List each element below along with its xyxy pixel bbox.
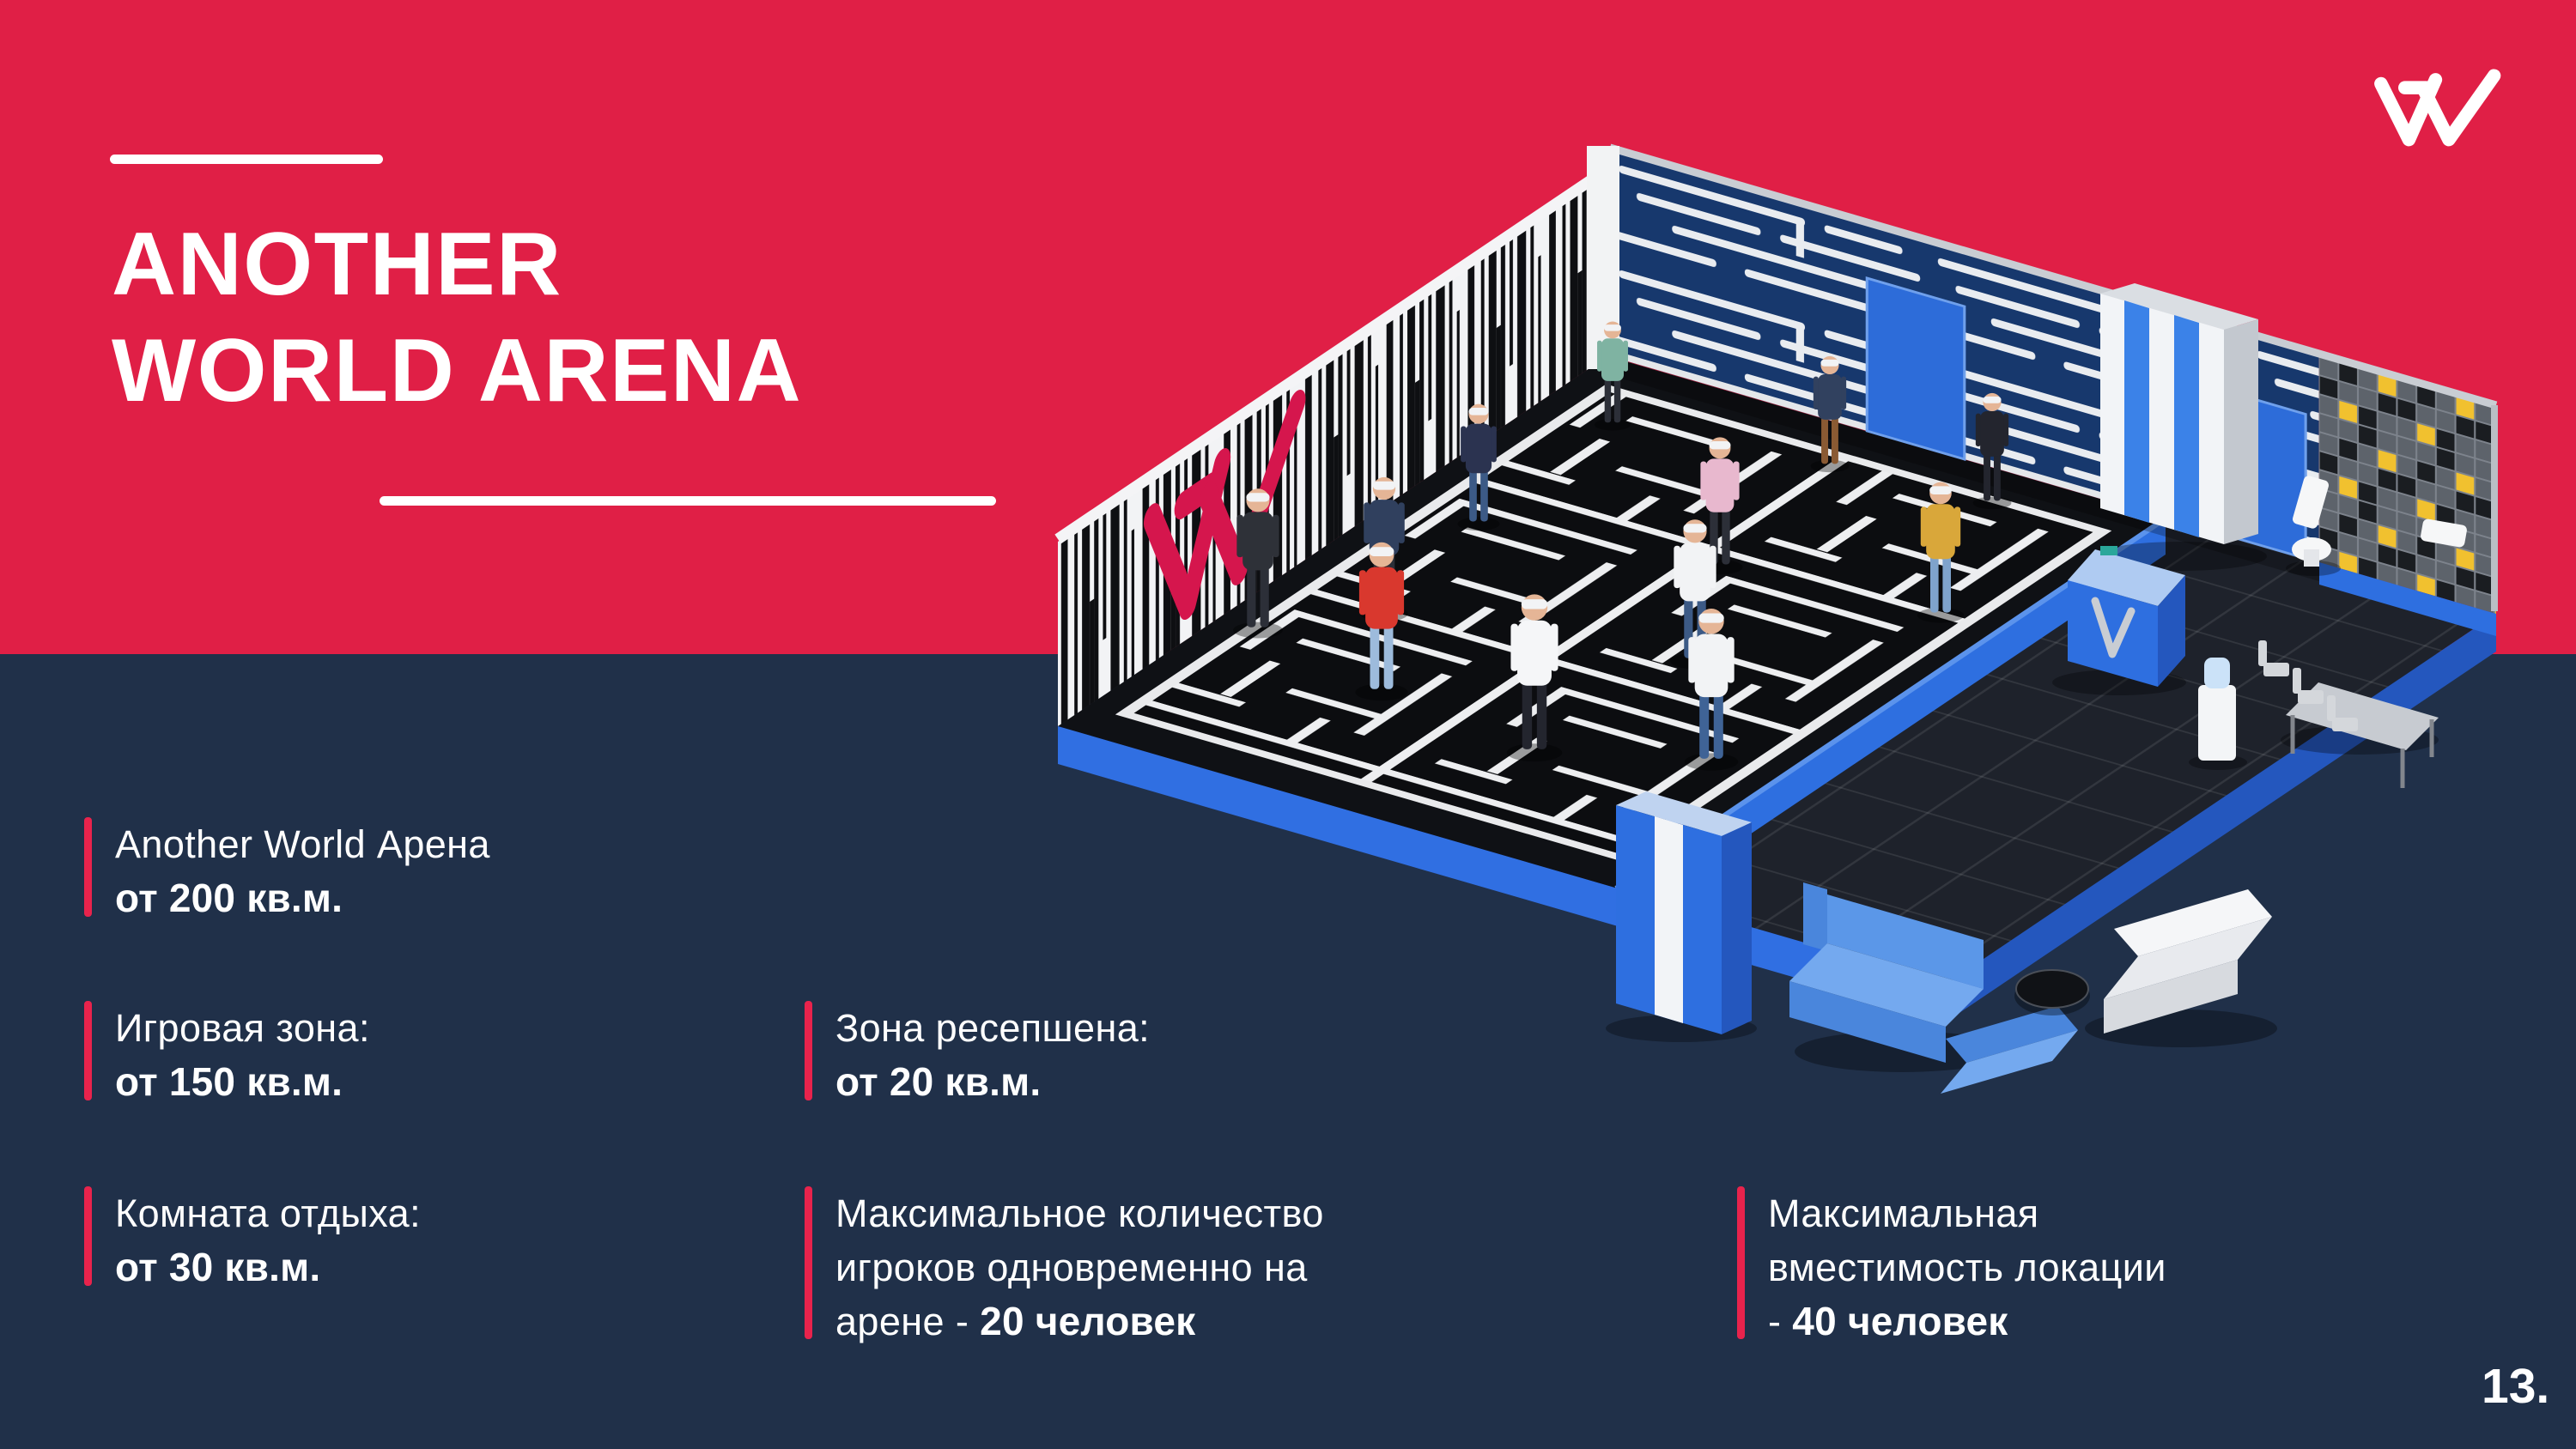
brand-logo-icon [2381,76,2494,139]
accent-bar [805,1001,812,1100]
stat-value: от 20 кв.м. [835,1059,1041,1104]
accent-bar [1737,1186,1745,1339]
accent-bar [805,1186,812,1339]
stat-label: Зона ресепшена: [835,1006,1150,1050]
accent-bar [84,1186,92,1286]
accent-bar [84,1001,92,1100]
stat-value: от 200 кв.м. [115,876,343,920]
stat-value: от 30 кв.м. [115,1245,320,1289]
stat-value: 40 человек [1792,1299,2008,1343]
stat-max-capacity: Максимальная вместимость локации - 40 че… [1737,1186,2166,1349]
stat-label: Игровая зона: [115,1006,370,1050]
stat-max-players: Максимальное количество игроков одноврем… [805,1186,1324,1349]
stat-label: Another World Арена [115,822,490,866]
stat-game-zone: Игровая зона: от 150 кв.м. [84,1001,370,1109]
page-number: 13. [2482,1358,2549,1415]
stat-rest-room: Комната отдыха: от 30 кв.м. [84,1186,421,1294]
slide: ANOTHER WORLD ARENA [0,0,2576,1449]
stat-label: Комната отдыха: [115,1191,421,1235]
stat-value: от 150 кв.м. [115,1059,343,1104]
stat-reception-zone: Зона ресепшена: от 20 кв.м. [805,1001,1150,1109]
stat-value: 20 человек [980,1299,1195,1343]
accent-bar [84,817,92,917]
stat-total-area: Another World Арена от 200 кв.м. [84,817,490,925]
